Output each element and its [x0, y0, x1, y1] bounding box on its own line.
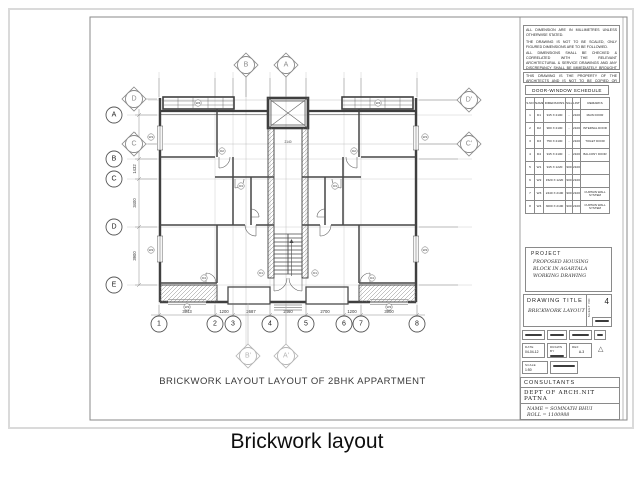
- schedule-cell: 5: [526, 162, 535, 175]
- schedule-row: 8W43000 X 21009002100CURTAIN WALL SYSTEM: [526, 201, 610, 214]
- slide: W4W4D2D2D3D3W1W1W2W2D1D1D4D4W3W3 3943120…: [0, 0, 638, 479]
- grid-bubble-label: 4: [268, 321, 272, 328]
- schedule-row: 2D2900 X 2100-2100INTERNAL DOOR: [526, 123, 610, 136]
- plan-title: BRICKWORK LAYOUT LAYOUT OF 2BHK APPARTME…: [120, 376, 465, 387]
- section-marker-label: A': [283, 353, 289, 360]
- scale-box: SCALE 1:50: [522, 361, 548, 374]
- schedule-cell: 2440 X 2100: [544, 188, 566, 201]
- schedule-cell: 3000 X 2100: [544, 201, 566, 214]
- schedule-cell: W1: [535, 162, 544, 175]
- date-box: DATE 04-04-12: [522, 343, 545, 358]
- section-marker-label: C: [131, 141, 136, 148]
- schedule-cell: D4: [535, 149, 544, 162]
- schedule-cell: 2100: [573, 175, 581, 188]
- schedule-cell: D1: [535, 110, 544, 123]
- schedule-cell: -: [566, 136, 573, 149]
- drawing-title-box: DRAWING TITLE BRICKWORK LAYOUT SHEET NO …: [523, 294, 612, 327]
- schedule-cell: -: [566, 149, 573, 162]
- schedule-cell: 2100: [573, 123, 581, 136]
- schedule-cell: 2100: [573, 136, 581, 149]
- ref-value: A-3: [572, 350, 591, 354]
- caption: Brickwork layout: [0, 430, 614, 454]
- section-marker-label: D': [466, 97, 472, 104]
- schedule-cell: INTERNAL DOOR: [581, 123, 610, 136]
- staircase: [274, 234, 302, 276]
- wall-windows: [157, 126, 420, 305]
- schedule-cell: 3: [526, 136, 535, 149]
- consultant-sem: SEM. = 8: [527, 420, 619, 421]
- schedule-cell: 900: [566, 162, 573, 175]
- schedule-cell: 915 X 2100: [544, 149, 566, 162]
- schedule-col-header: LINTEL: [573, 98, 581, 110]
- schedule-cell: 2100: [573, 110, 581, 123]
- grid-bubble-label: 7: [359, 321, 363, 328]
- schedule-row: 6W21520 X 12209002100: [526, 175, 610, 188]
- schedule-cell: 2100: [573, 149, 581, 162]
- grid-bubble-label: D: [111, 224, 116, 231]
- project-line: WORKING DRAWING: [533, 274, 611, 279]
- dimension-value: 2460: [283, 309, 293, 314]
- fixture-tag-label: W4: [196, 101, 201, 105]
- fixture-tag-label: D4: [370, 276, 374, 280]
- schedule-row: 4D4915 X 2100-2100BALCONY DOOR: [526, 149, 610, 162]
- grid-bubble-label: 6: [342, 321, 346, 328]
- schedule-cell: D3: [535, 136, 544, 149]
- grid-bubble-label: 3: [231, 321, 235, 328]
- schedule-cell: 8: [526, 201, 535, 214]
- schedule-cell: 915 X 2100: [544, 110, 566, 123]
- grid-lines: [127, 72, 472, 348]
- drawing-title-value: BRICKWORK LAYOUT: [528, 308, 586, 314]
- schedule-col-header: DIMENSIONS: [544, 98, 566, 110]
- dimension-value: 1432: [132, 164, 137, 174]
- schedule-cell: MAIN DOOR: [581, 110, 610, 123]
- note-line: THE DRAWING IS NOT TO BE SCALED, ONLY FI…: [526, 40, 617, 50]
- note-line: THIS DRAWING IS THE PROPERTY OF THE ARCH…: [526, 74, 617, 83]
- schedule-cell: 915 X 1220: [544, 162, 566, 175]
- schedule-cell: 2100: [573, 188, 581, 201]
- section-marker-label: B': [245, 353, 251, 360]
- ref-label: REF: [572, 345, 591, 349]
- schedule-cell: 2100: [573, 162, 581, 175]
- note-line: ALL DIMENSIONS SHALL BE CHECKED & CORREL…: [526, 51, 617, 70]
- drawn-by-label: DRAWN BY: [550, 345, 566, 353]
- section-marker-label: B: [244, 62, 249, 69]
- schedule-cell: 6: [526, 175, 535, 188]
- schedule-cell: 900: [566, 188, 573, 201]
- schedule-cell: D2: [535, 123, 544, 136]
- section-marker-label: C': [466, 141, 472, 148]
- schedule-cell: 1520 X 1220: [544, 175, 566, 188]
- dimension-value: 3943: [182, 309, 192, 314]
- date-value: 04-04-12: [525, 350, 544, 354]
- schedule-cell: 900 X 2100: [544, 123, 566, 136]
- property-note: THIS DRAWING IS THE PROPERTY OF THE ARCH…: [523, 72, 620, 83]
- fixture-labels: W4W4D2D2D3D3W1W1W2W2D1D1D4D4W3W3: [148, 100, 428, 310]
- note-line: ALL DIMENSION ARE IN MILLIMETRES UNLESS …: [526, 28, 617, 38]
- section-marker-label: D: [131, 96, 136, 103]
- schedule-row: 1D1915 X 2100-2100MAIN DOOR: [526, 110, 610, 123]
- schedule-col-header: NAME: [535, 98, 544, 110]
- consultant-roll: ROLL = 1100988: [527, 413, 619, 418]
- drawn-by-box: DRAWN BY: [547, 343, 567, 358]
- dimension-value: 2700: [320, 309, 330, 314]
- schedule-cell: W2: [535, 175, 544, 188]
- scale-label: SCALE: [525, 363, 547, 367]
- schedule-cell: CURTAIN WALL SYSTEM: [581, 188, 610, 201]
- triangle-icon: △: [598, 346, 603, 353]
- drawing-title-label: DRAWING TITLE: [527, 298, 586, 304]
- schedule-cell: W3: [535, 188, 544, 201]
- project-box: PROJECT PROPOSED HOUSING BLOCK IN AGARTA…: [525, 247, 612, 292]
- sheet-no-label: SHEET NO: [587, 298, 591, 317]
- fixture-tag-label: D2: [220, 149, 224, 153]
- grid-bubble-label: 2: [213, 321, 217, 328]
- grid-bubble-label: A: [112, 112, 117, 119]
- fixture-tag-label: W2: [423, 248, 428, 252]
- grid-bubble-label: C: [111, 176, 116, 183]
- dimension-lines: [135, 78, 458, 318]
- grid-bubble-label: 5: [304, 321, 308, 328]
- consultants-dept: DEPT OF ARCH.NIT PATNA: [524, 390, 619, 402]
- grid-bubble-label: 8: [415, 321, 419, 328]
- sheet-number: 4: [605, 297, 609, 306]
- dimension-value: 3400: [132, 198, 137, 208]
- schedule-cell: [581, 175, 610, 188]
- project-line: PROPOSED HOUSING: [533, 260, 611, 265]
- consultants-label: CONSULTANTS: [524, 380, 619, 386]
- balconies: [160, 285, 416, 310]
- dimension-value: 1200: [219, 309, 229, 314]
- date-label: DATE: [525, 345, 544, 349]
- dimension-value: 3900: [384, 309, 394, 314]
- consultant-name: NAME = SOMNATH BHUI: [527, 407, 619, 412]
- schedule-cell: 2: [526, 123, 535, 136]
- fixture-tag-label: W4: [376, 101, 381, 105]
- dimension-value: 2140: [284, 140, 291, 144]
- schedule-cell: 2100: [573, 201, 581, 214]
- schedule-cell: -: [566, 110, 573, 123]
- door-window-schedule: S.NONAMEDIMENSIONSSILLLINTELREMARKS 1D19…: [525, 97, 610, 214]
- lift-shaft: [268, 98, 308, 128]
- fixture-tag-label: D3: [239, 184, 243, 188]
- schedule-cell: 4: [526, 149, 535, 162]
- schedule-cell: BALCONY DOOR: [581, 149, 610, 162]
- dimension-value: 1200: [347, 309, 357, 314]
- general-notes: ALL DIMENSION ARE IN MILLIMETRES UNLESS …: [523, 25, 620, 70]
- schedule-col-header: S.NO: [526, 98, 535, 110]
- schedule-cell: [581, 162, 610, 175]
- section-marker-label: A: [284, 62, 289, 69]
- schedule-col-header: REMARKS: [581, 98, 610, 110]
- consultants-box: CONSULTANTS DEPT OF ARCH.NIT PATNA NAME …: [520, 377, 620, 420]
- drawing-scan: W4W4D2D2D3D3W1W1W2W2D1D1D4D4W3W3 3943120…: [8, 8, 634, 429]
- fixture-tag-label: W2: [149, 248, 154, 252]
- schedule-cell: W4: [535, 201, 544, 214]
- fixture-tag-label: W1: [149, 135, 154, 139]
- schedule-row: 7W32440 X 21009002100CURTAIN WALL SYSTEM: [526, 188, 610, 201]
- grid-bubble-label: E: [112, 282, 117, 289]
- schedule-cell: -: [566, 123, 573, 136]
- dimension-value: 3900: [132, 251, 137, 261]
- schedule-cell: 1: [526, 110, 535, 123]
- schedule-cell: 900: [566, 201, 573, 214]
- scale-value: 1:50: [525, 368, 547, 372]
- fixture-tag-label: W1: [423, 135, 428, 139]
- schedule-cell: 750 X 2100: [544, 136, 566, 149]
- ref-box: REF A-3: [569, 343, 592, 358]
- fixture-tag-label: D3: [333, 184, 337, 188]
- schedule-row: 5W1915 X 12209002100: [526, 162, 610, 175]
- fixture-tag-label: D1: [259, 271, 263, 275]
- schedule-col-header: SILL: [566, 98, 573, 110]
- schedule-cell: TOILET DOOR: [581, 136, 610, 149]
- grid-bubble-label: 1: [157, 321, 161, 328]
- fixture-tag-label: D1: [313, 271, 317, 275]
- schedule-cell: 7: [526, 188, 535, 201]
- grid-bubble-label: B: [112, 156, 117, 163]
- project-label: PROJECT: [531, 251, 611, 257]
- fixture-tag-label: D2: [352, 149, 356, 153]
- schedule-cell: 900: [566, 175, 573, 188]
- schedule-title: DOOR-WINDOW SCHEDULE: [525, 85, 609, 95]
- schedule-cell: CURTAIN WALL SYSTEM: [581, 201, 610, 214]
- project-line: BLOCK IN AGARTALA: [533, 267, 611, 272]
- schedule-row: 3D3750 X 2100-2100TOILET DOOR: [526, 136, 610, 149]
- fixture-tag-label: D4: [202, 276, 206, 280]
